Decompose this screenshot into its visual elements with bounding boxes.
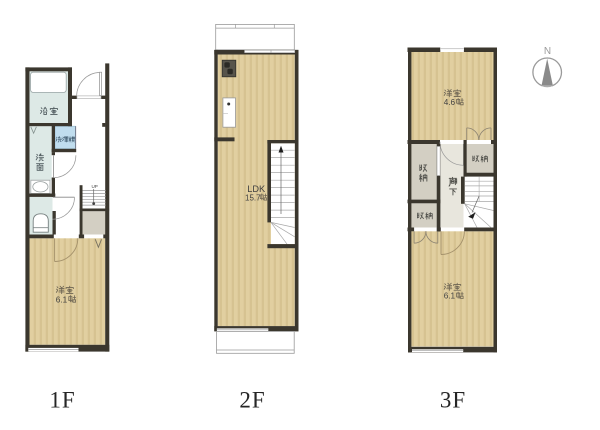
svg-text:15.7: 15.7 [245,193,261,202]
svg-text:3F: 3F [440,388,466,413]
svg-text:4.6: 4.6 [444,98,456,107]
svg-text:6.1: 6.1 [444,292,456,301]
svg-text:N: N [544,46,551,57]
svg-text:6.1: 6.1 [56,295,68,304]
svg-text:UP: UP [91,184,97,189]
svg-text:1F: 1F [49,388,75,413]
svg-text:2F: 2F [239,388,265,413]
